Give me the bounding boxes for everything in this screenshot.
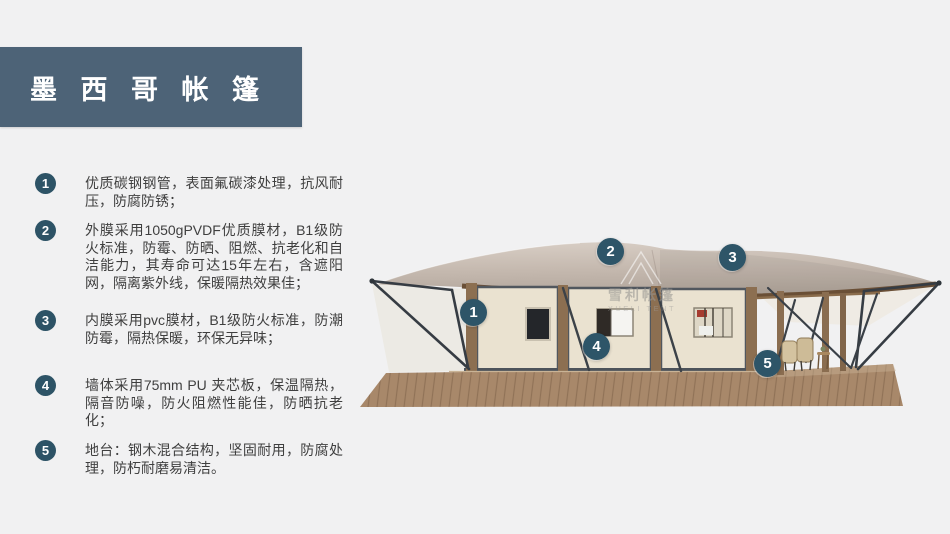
feature-text-3: 内膜采用pvc膜材，B1级防火标准，防潮防霉，隔热保暖，环保无异味； (85, 312, 343, 347)
patio-chairs (782, 338, 813, 371)
callout-marker-3: 3 (719, 244, 746, 271)
tent-drawing: 雪利帐篷 XUELI TENT (355, 222, 945, 417)
feature-number-badge-1: 1 (35, 173, 56, 194)
feature-number-badge-2: 2 (35, 220, 56, 241)
callout-marker-4: 4 (583, 333, 610, 360)
feature-text-1: 优质碳钢钢管，表面氟碳漆处理，抗风耐压，防腐防锈； (85, 175, 343, 210)
feature-item-4: 4 墙体采用75mm PU 夹芯板，保温隔热，隔音防噪，防火阻燃性能佳，防晒抗老… (35, 377, 343, 430)
feature-item-5: 5 地台：钢木混合结构，坚固耐用，防腐处理，防朽耐磨易清洁。 (35, 442, 343, 477)
watermark-cn: 雪利帐篷 (608, 287, 676, 303)
callout-marker-2: 2 (597, 238, 624, 265)
feature-text-5: 地台：钢木混合结构，坚固耐用，防腐处理，防朽耐磨易清洁。 (85, 442, 343, 477)
feature-text-2: 外膜采用1050gPVDF优质膜材，B1级防火标准，防霉、防晒、阻燃、抗老化和自… (85, 222, 343, 292)
callout-marker-5: 5 (754, 350, 781, 377)
window-left (526, 308, 550, 340)
slide: 墨 西 哥 帐 篷 1 优质碳钢钢管，表面氟碳漆处理，抗风耐压，防腐防锈； 2 … (0, 0, 950, 534)
feature-number-badge-5: 5 (35, 440, 56, 461)
tent-illustration: 雪利帐篷 XUELI TENT 1 2 3 4 5 (355, 222, 945, 417)
title-banner: 墨 西 哥 帐 篷 (0, 47, 302, 127)
feature-item-1: 1 优质碳钢钢管，表面氟碳漆处理，抗风耐压，防腐防锈； (35, 175, 343, 210)
feature-number-badge-3: 3 (35, 310, 56, 331)
watermark-en: XUELI TENT (608, 304, 676, 313)
feature-item-2: 2 外膜采用1050gPVDF优质膜材，B1级防火标准，防霉、防晒、阻燃、抗老化… (35, 222, 343, 292)
feature-item-3: 3 内膜采用pvc膜材，B1级防火标准，防潮防霉，隔热保暖，环保无异味； (35, 312, 343, 347)
page-title: 墨 西 哥 帐 篷 (0, 68, 267, 107)
feature-number-badge-4: 4 (35, 375, 56, 396)
feature-text-4: 墙体采用75mm PU 夹芯板，保温隔热，隔音防噪，防火阻燃性能佳，防晒抗老化； (85, 377, 343, 430)
callout-marker-1: 1 (460, 299, 487, 326)
